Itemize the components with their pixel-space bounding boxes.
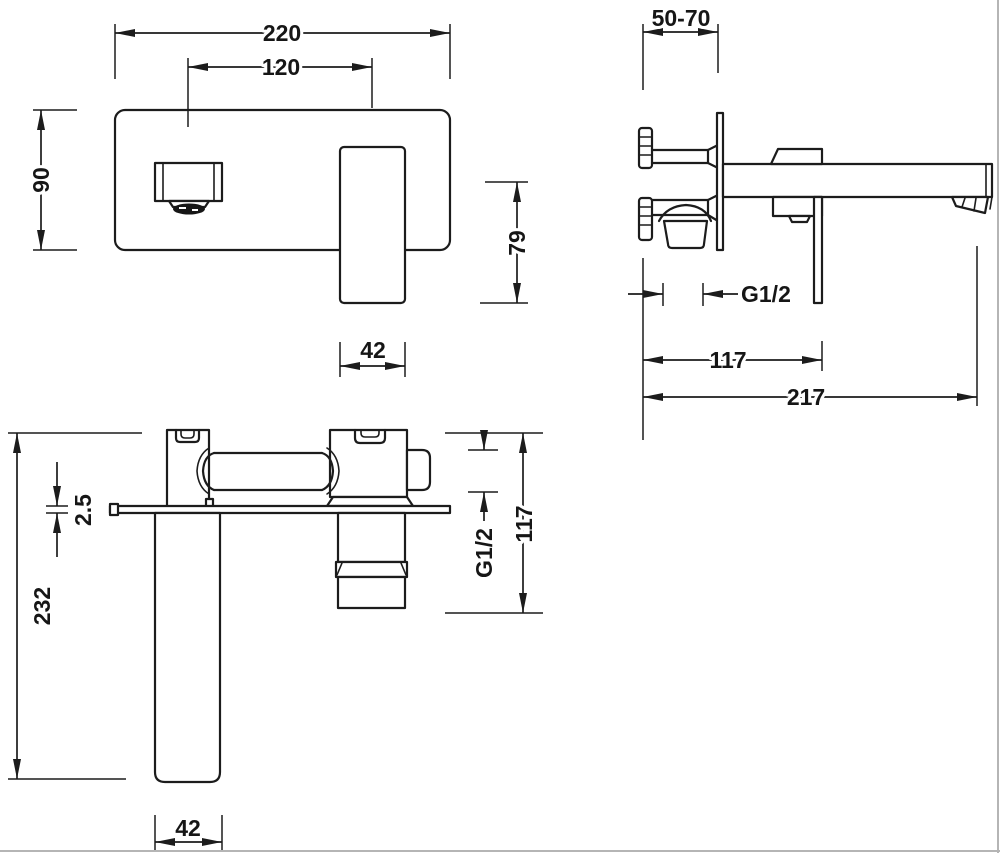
cartridge-flange [327, 497, 413, 506]
dim-50-70-label: 50-70 [652, 5, 711, 31]
handle-top-block [771, 149, 822, 164]
side-spout [723, 164, 992, 213]
dim-120-label: 120 [262, 54, 300, 80]
side-view: 50-70 G1/2 117 217 [628, 5, 992, 440]
drawing-sheet: 220 120 90 42 79 [0, 0, 1000, 853]
dim-2-5-label: 2.5 [70, 494, 96, 526]
dim-top-body-span: 117 [445, 433, 543, 613]
dim-front-handle-width: 42 [340, 337, 405, 377]
in-wall-body [652, 145, 718, 248]
dim-42-front-label: 42 [360, 337, 386, 363]
dim-220-label: 220 [263, 20, 301, 46]
valve-dome [659, 205, 711, 221]
top-right-block [330, 430, 407, 497]
aerator-outlet [173, 204, 205, 215]
dim-g12-top-label: G1/2 [471, 528, 497, 578]
dim-top-spout-length: 232 [8, 433, 142, 779]
cartridge-ring [336, 562, 407, 577]
top-spout-tube [155, 513, 220, 782]
dim-front-height: 90 [28, 110, 77, 250]
dim-top-thread: G1/2 [468, 433, 498, 578]
dim-top-spout-width: 42 [155, 815, 222, 850]
valve-body [664, 221, 707, 248]
side-aerator [952, 197, 988, 213]
dim-232-label: 232 [29, 587, 55, 625]
dim-top-plate-thickness: 2.5 [46, 462, 96, 557]
inlet-stub-top [639, 128, 652, 168]
dim-side-thread: G1/2 [628, 281, 791, 307]
dim-79-label: 79 [504, 230, 530, 256]
dim-front-outlet-to-handle-tip: 79 [480, 182, 530, 303]
dim-side-embed-depth: 50-70 [643, 5, 718, 90]
dim-117-side-label: 117 [709, 347, 746, 373]
spout-end-face [155, 163, 222, 201]
dim-side-spout-reach: 217 [643, 246, 977, 410]
inlet-stub-bottom [639, 198, 652, 240]
dim-g12-side-label: G1/2 [741, 281, 791, 307]
body-barrel [197, 448, 339, 494]
plate-end-cap [110, 504, 118, 515]
top-view: 232 2.5 42 G1/2 [8, 430, 543, 850]
dim-117-top-label: 117 [511, 505, 537, 542]
cartridge-column [336, 513, 407, 608]
front-handle-lever [340, 147, 405, 303]
dim-42-top-label: 42 [175, 815, 201, 841]
dim-90-label: 90 [28, 167, 54, 193]
right-boss [407, 450, 430, 490]
dim-side-handle-offset: 117 [643, 341, 822, 373]
handle-lever-bar [814, 197, 822, 303]
dim-217-label: 217 [787, 384, 825, 410]
faucet-technical-drawing: 220 120 90 42 79 [0, 0, 1000, 853]
front-view: 220 120 90 42 79 [28, 20, 530, 377]
cartridge-base [338, 577, 405, 608]
